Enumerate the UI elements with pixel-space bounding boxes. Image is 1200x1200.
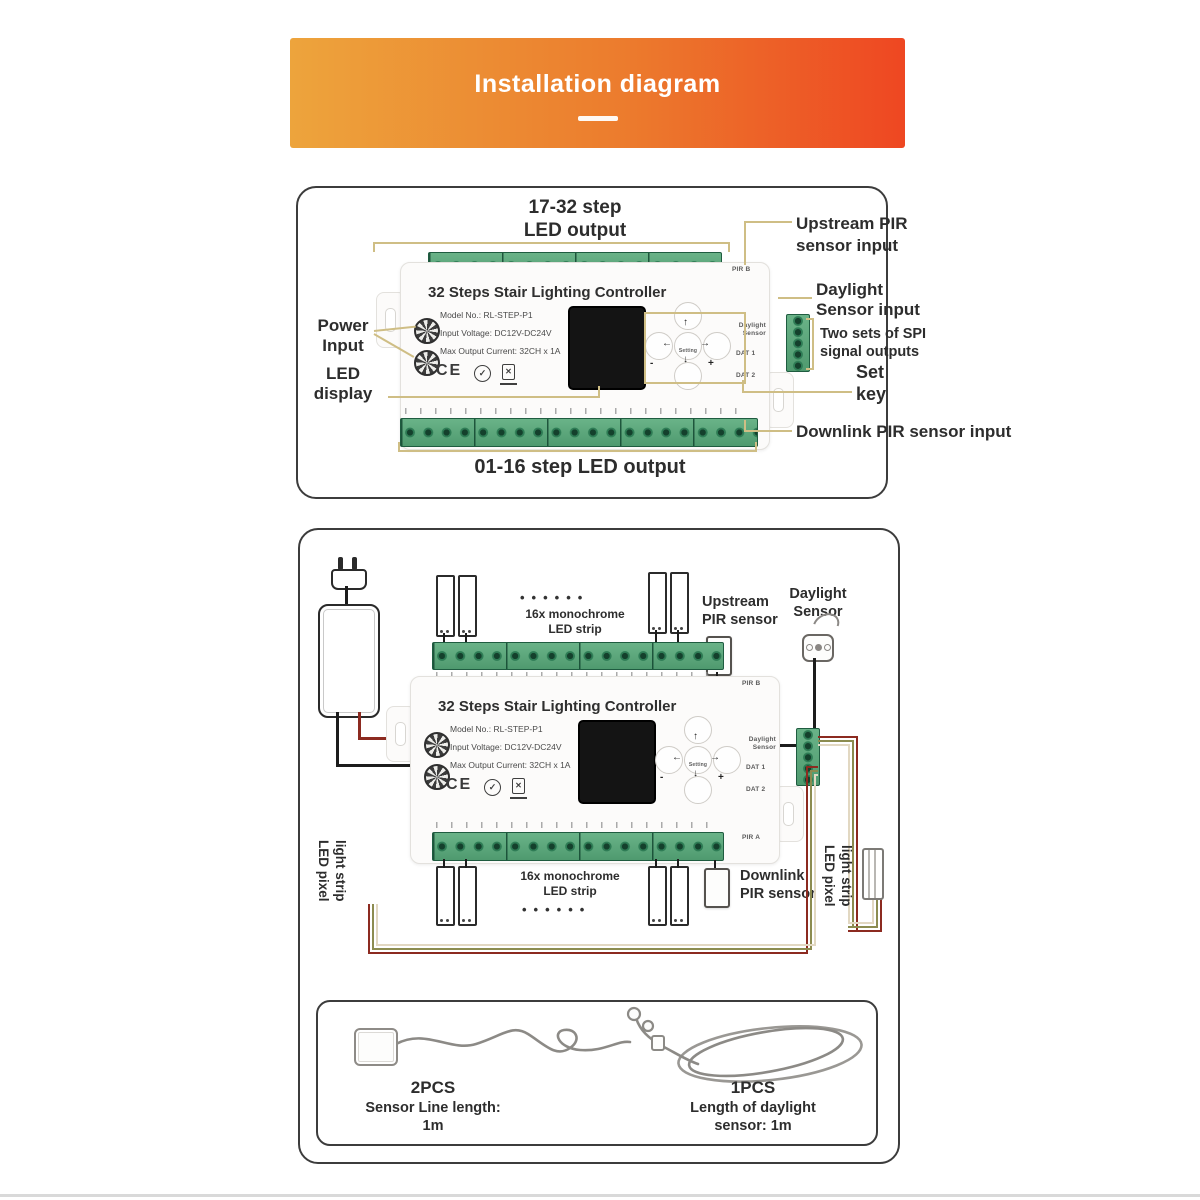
power-terminal-screw [424, 732, 450, 758]
set-key-callout-box [644, 312, 746, 384]
button-up[interactable] [684, 716, 712, 744]
controller-current: Max Output Current: 32CH x 1A [450, 760, 570, 770]
leader-line [744, 221, 792, 223]
dat-wire-tan [814, 774, 816, 946]
mono-strip-top-label1: 16x monochrome [500, 608, 650, 622]
dat-wire-olive [810, 770, 812, 950]
strip-wire [465, 859, 467, 868]
mono-led-strip [670, 866, 689, 926]
power-terminal-screw [414, 318, 440, 344]
pin-markings [436, 822, 720, 828]
pir-a-port-label: PIR A [742, 834, 760, 841]
leader-line [778, 297, 812, 299]
mono-led-strip [436, 866, 455, 926]
terminal-strip-top [432, 642, 724, 670]
mono-led-strip [648, 572, 667, 634]
dat-wire-tan [376, 904, 378, 946]
power-wire-black [336, 764, 416, 767]
dat-wire-red [806, 766, 808, 954]
led-display-screen [578, 720, 656, 804]
mounting-hole [395, 722, 406, 746]
pir-b-port-label: PIR B [742, 680, 760, 687]
dat-wire-red [368, 904, 370, 954]
arrow-up-glyph: ↑ [693, 731, 698, 742]
controller-model: Model No.: RL-STEP-P1 [440, 310, 533, 320]
daylight-sensor-label1: Daylight [780, 586, 856, 603]
button-setting[interactable] [684, 746, 712, 774]
mono-led-strip [648, 866, 667, 926]
upstream-pir-label1: Upstream PIR [796, 214, 907, 234]
upstream-pir-sensor-label1: Upstream [702, 594, 769, 611]
led-output-17-32-line1: 17-32 step [480, 197, 670, 219]
page-bottom-rule [0, 1194, 1200, 1197]
pixel-strip-right-label2: light strip [837, 845, 854, 907]
weee-underline [500, 383, 517, 385]
leader-line [373, 242, 375, 252]
dat-wire-olive [818, 740, 852, 742]
dat2-port-label: DAT 2 [746, 786, 765, 793]
controller-voltage: Input Voltage: DC12V-DC24V [450, 742, 562, 752]
cert-check-icon: ✓ [474, 365, 491, 382]
pir-b-port-label: PIR B [732, 266, 750, 273]
daylight-sensor-head [643, 1021, 653, 1031]
dat-wire-tan [818, 744, 848, 746]
ce-mark: CE [436, 362, 462, 380]
leader-line [388, 396, 600, 398]
leader-line [742, 391, 852, 393]
strip-wire [443, 859, 445, 868]
weee-underline [510, 797, 527, 799]
left-desc-label1: Sensor Line length: [318, 1100, 548, 1117]
mono-led-strip [458, 866, 477, 926]
left-desc-label2: 1m [318, 1118, 548, 1135]
cert-check-icon: ✓ [484, 779, 501, 796]
dat-wire-tan [376, 944, 816, 946]
spi-terminal [786, 314, 810, 372]
dat-wire-olive [848, 926, 878, 928]
controller-voltage: Input Voltage: DC12V-DC24V [440, 328, 552, 338]
controller-current: Max Output Current: 32CH x 1A [440, 346, 560, 356]
arrow-right-glyph: → [710, 752, 720, 763]
right-desc-label2: sensor: 1m [638, 1118, 868, 1135]
leader-line [398, 450, 757, 452]
right-qty-label: 1PCS [658, 1078, 848, 1098]
daylight-port-label1: Daylight [740, 736, 776, 743]
set-key-label2: key [856, 384, 886, 405]
leader-line [755, 442, 757, 452]
upstream-pir-label2: sensor input [796, 236, 898, 256]
ce-mark: CE [446, 776, 472, 794]
left-qty-label: 2PCS [338, 1078, 528, 1098]
pixel-strip-left-label2: light strip [331, 840, 348, 902]
daylight-port-label2: Sensor [740, 744, 776, 751]
dat-wire-tan [872, 898, 874, 924]
spi-terminal [796, 728, 820, 786]
sensor-cable-squiggle [396, 1030, 630, 1052]
pixel-strip-left-label1: LED pixel [314, 840, 331, 902]
mono-strip-top-label2: LED strip [500, 623, 650, 637]
leader-line [744, 221, 746, 265]
power-wire-red [358, 712, 361, 739]
page-title: Installation diagram [290, 70, 905, 99]
dat-wire-red [856, 736, 858, 932]
spi-outputs-label1: Two sets of SPI [820, 326, 926, 343]
installation-diagram-page: Installation diagram 17-32 step LED outp… [0, 0, 1200, 1200]
mounting-hole [783, 802, 794, 826]
plug-cable [345, 586, 348, 604]
right-desc-label1: Length of daylight [638, 1100, 868, 1117]
leader-line [812, 318, 814, 370]
dat-wire-olive [876, 898, 878, 928]
pixel-strip-right-label1: LED pixel [820, 845, 837, 907]
header-banner: Installation diagram [290, 38, 905, 148]
spi-outputs-label2: signal outputs [820, 344, 919, 361]
led-output-01-16-label: 01-16 step LED output [450, 456, 710, 479]
weee-bin-icon: ✕ [512, 778, 525, 794]
mono-led-strip [458, 575, 477, 637]
daylight-input-label2: Sensor input [816, 300, 920, 320]
pin-markings [405, 408, 741, 414]
leader-line [598, 386, 600, 398]
dat-wire-red [818, 736, 856, 738]
weee-bin-icon: ✕ [502, 364, 515, 380]
mono-led-strip [436, 575, 455, 637]
led-display-label1: LED [312, 364, 374, 384]
downlink-pir-sensor-label1: Downlink [740, 868, 804, 885]
pixel-strip-left-label: LED pixel light strip [314, 840, 348, 902]
leader-line [806, 318, 814, 320]
leader-line [744, 430, 792, 432]
cable-strain-relief [652, 1036, 664, 1050]
accessories-panel: 2PCS Sensor Line length: 1m 1PCS Length … [316, 1000, 878, 1146]
ellipsis-dots: •••••• [520, 590, 589, 605]
mono-led-strip [670, 572, 689, 634]
strip-wire [655, 859, 657, 868]
controller-title: 32 Steps Stair Lighting Controller [428, 284, 758, 301]
power-input-label1: Power [312, 316, 374, 336]
pixel-strip-right-label: LED pixel light strip [820, 845, 854, 907]
dat-wire-red [368, 952, 808, 954]
power-adapter [318, 604, 380, 718]
mono-strip-bottom-label1: 16x monochrome [500, 870, 640, 884]
downlink-pir-label: Downlink PIR sensor input [796, 422, 1011, 442]
led-output-17-32-line2: LED output [480, 220, 670, 242]
mono-strip-bottom-label2: LED strip [500, 885, 640, 899]
daylight-sensor [802, 634, 834, 662]
ellipsis-dots: •••••• [522, 902, 591, 917]
upstream-pir-sensor-label2: PIR sensor [702, 612, 778, 629]
terminal-strip-bottom [432, 832, 724, 861]
leader-line [373, 242, 730, 244]
sensor-wire [714, 860, 716, 868]
power-plug-icon [331, 569, 367, 590]
controller-model: Model No.: RL-STEP-P1 [450, 724, 543, 734]
dat1-port-label: DAT 1 [746, 764, 765, 771]
pir-sensor-accessory [354, 1028, 398, 1066]
plus-glyph: + [718, 772, 724, 783]
daylight-sensor-head [628, 1008, 640, 1020]
dat-wire-tan [848, 922, 874, 924]
led-display-screen [568, 306, 646, 390]
downlink-pir-sensor-label2: PIR sensor [740, 886, 816, 903]
terminal-strip-bottom [400, 418, 758, 447]
leader-line [806, 368, 814, 370]
led-display-label2: display [300, 384, 386, 404]
title-underline [578, 116, 618, 121]
power-wire-black [336, 712, 339, 766]
leader-line [728, 242, 730, 252]
downlink-pir-sensor [704, 868, 730, 908]
leader-line [398, 442, 400, 452]
dat-wire-red [880, 898, 882, 932]
dat-wire-olive [372, 948, 812, 950]
strip-wire [677, 859, 679, 868]
setting-label: Setting [686, 762, 710, 768]
minus-glyph: - [660, 772, 663, 783]
arrow-left-glyph: ← [672, 752, 682, 763]
dat-wire-olive [372, 904, 374, 950]
dat-wire-red [848, 930, 882, 932]
controller-title: 32 Steps Stair Lighting Controller [438, 698, 768, 715]
power-input-label2: Input [312, 336, 374, 356]
set-key-label1: Set [856, 362, 884, 383]
pixel-strip-connector [862, 848, 884, 900]
daylight-input-label1: Daylight [816, 280, 883, 300]
button-down[interactable] [684, 776, 712, 804]
arrow-down-glyph: ↓ [693, 768, 698, 779]
